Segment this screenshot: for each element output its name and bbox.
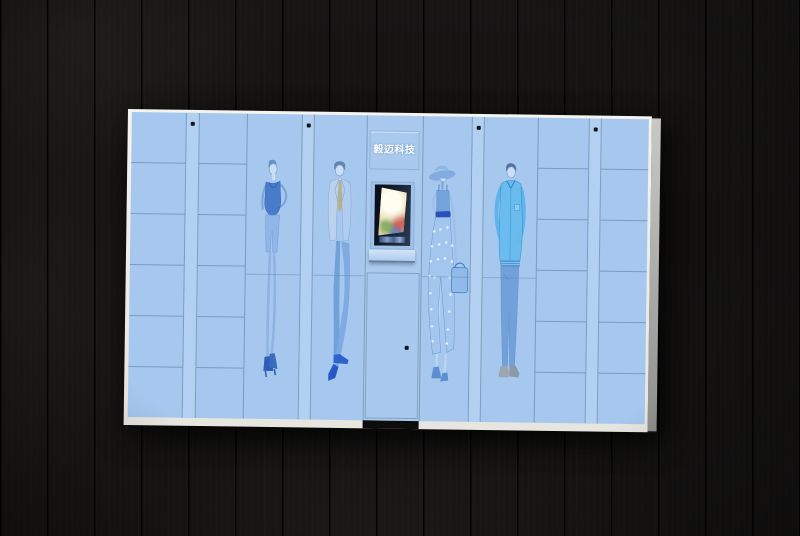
locker-door-small[interactable] [196,317,244,369]
large-locker-door-1[interactable] [244,114,303,420]
locker-door-small[interactable] [601,119,649,171]
locker-door-small[interactable] [537,220,588,272]
locker-door-small[interactable] [128,316,183,368]
locker-door-small[interactable] [198,215,246,267]
lock-icon [476,126,480,130]
locker-door-small[interactable] [598,323,646,375]
locker-door-small[interactable] [199,164,247,216]
lock-icon [191,122,195,126]
locker-door-small[interactable] [599,272,647,324]
locker-door-small[interactable] [538,118,589,170]
man-suit-figure [307,160,370,389]
locker-door-small[interactable] [600,170,648,222]
brand-text: 毅迈科技 [373,145,415,156]
lock-icon [306,123,310,127]
locker-door-small[interactable] [197,266,245,318]
man-casual-figure [478,162,541,387]
locker-door-small[interactable] [537,169,588,221]
locker-front-face: 毅迈科技 [128,112,649,424]
locker-door-small[interactable] [131,163,186,215]
locker-door-small[interactable] [600,221,648,273]
large-locker-door-3[interactable] [420,116,473,422]
parcel-locker-cabinet: 毅迈科技 [124,109,661,432]
small-locker-column-right-inner [535,118,590,424]
base-notch [363,420,419,429]
screen-display[interactable] [378,188,407,236]
locker-door-small[interactable] [130,214,185,266]
large-locker-door-4[interactable] [481,117,539,423]
large-locker-door-2[interactable] [311,115,368,421]
small-locker-column-left-outer [128,112,187,418]
screen-recess [374,184,411,245]
woman-tank-top-figure [241,159,304,388]
locker-front-frame: 毅迈科技 [124,109,652,432]
locker-door-small[interactable] [196,368,244,419]
console-service-door[interactable] [365,272,420,419]
locker-door-small[interactable] [128,367,183,418]
brand-panel: 毅迈科技 [369,130,420,170]
small-locker-column-left-inner [196,113,248,419]
small-locker-column-right-outer [598,119,649,425]
handbag-icon [451,268,467,293]
screen-keypad-glow [379,237,405,243]
lock-icon [593,127,597,131]
locker-door-small[interactable] [129,265,184,317]
locker-door-small[interactable] [131,112,186,164]
keypad-ledge[interactable] [369,249,415,263]
locker-door-small[interactable] [536,271,587,323]
locker-door-small[interactable] [535,322,586,374]
lock-icon [405,346,409,350]
kiosk-screen[interactable] [370,181,415,250]
locker-door-small[interactable] [598,374,646,425]
locker-door-small[interactable] [199,113,247,165]
locker-door-small[interactable] [535,373,586,424]
